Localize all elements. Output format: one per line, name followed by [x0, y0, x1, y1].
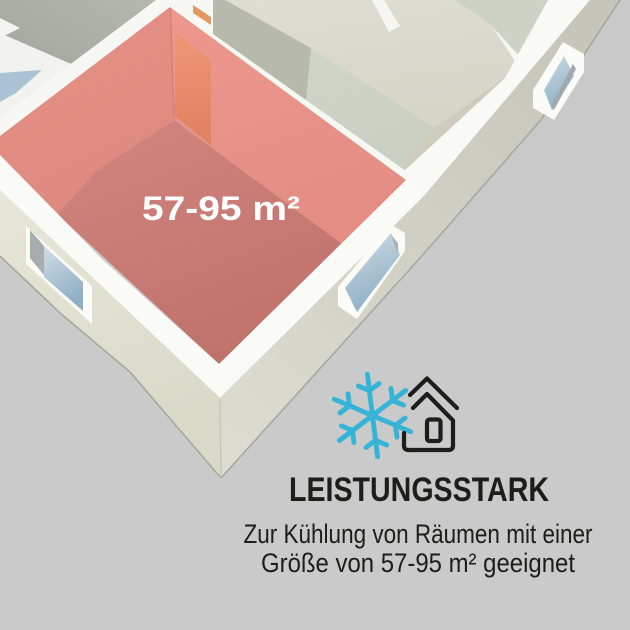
svg-text:57-95 m²: 57-95 m² — [142, 190, 300, 228]
svg-text:Zur Kühlung von Räumen mit ein: Zur Kühlung von Räumen mit einer — [244, 519, 593, 549]
svg-text:LEISTUNGSSTARK: LEISTUNGSSTARK — [289, 471, 549, 509]
svg-text:Größe von 57-95 m² geeignet: Größe von 57-95 m² geeignet — [261, 548, 576, 578]
